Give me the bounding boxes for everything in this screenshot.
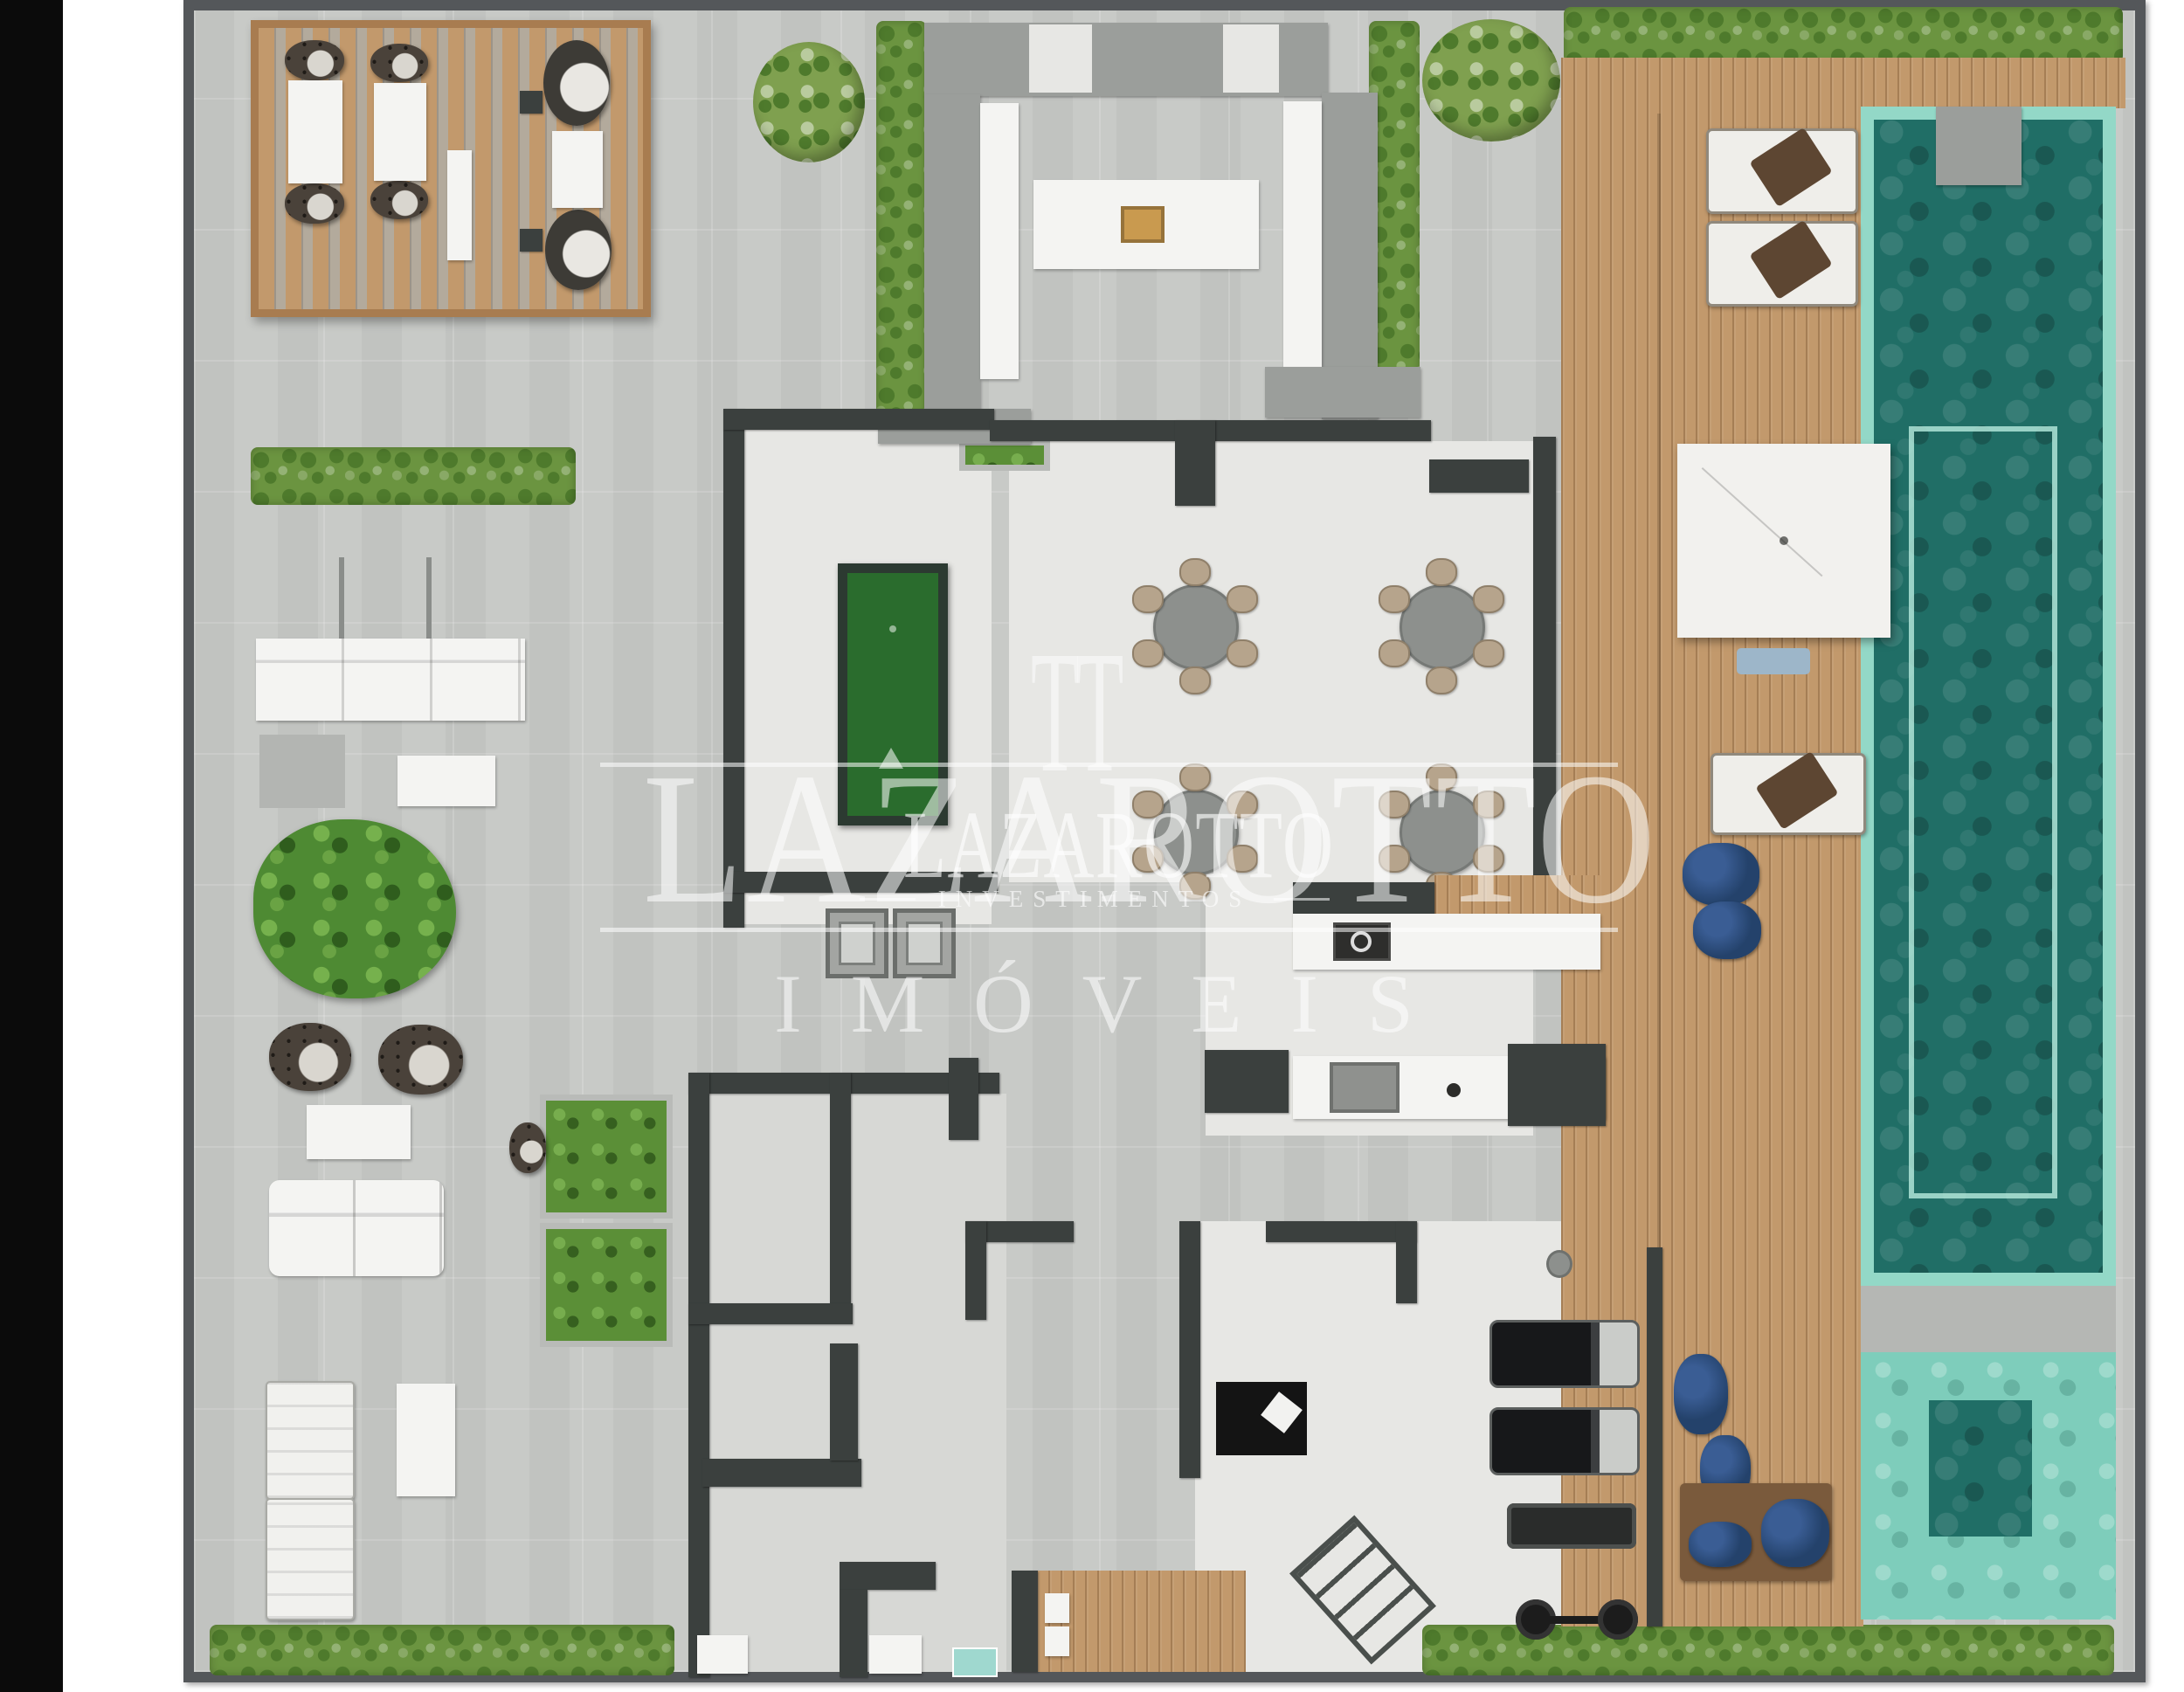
dining-chair — [1132, 845, 1164, 873]
planter-box-2 — [540, 1223, 673, 1347]
wall-core-v — [830, 1073, 851, 1321]
round-armchair — [269, 1023, 351, 1091]
entry-mat — [869, 1635, 922, 1674]
sink — [1447, 1083, 1461, 1097]
outdoor-sofa — [256, 639, 525, 721]
wall-left-long — [688, 1073, 709, 1677]
dining-chair — [1227, 585, 1258, 613]
pergola-table-2 — [374, 83, 426, 181]
deck-table-vertical — [397, 1384, 455, 1496]
bar-top-notch — [1029, 24, 1092, 93]
sauna-bench — [1045, 1593, 1069, 1623]
wall-dining-stub — [1175, 420, 1215, 506]
loveseat-pair — [269, 1180, 444, 1276]
wall-rooms-h — [702, 1459, 861, 1487]
left-black-strip — [0, 0, 63, 1692]
dining-chair — [1379, 639, 1410, 667]
pergola-side-table — [520, 91, 543, 114]
wall-gym-right — [1647, 1247, 1662, 1626]
blue-daybed-cushion — [1761, 1499, 1829, 1567]
garden-bush — [253, 819, 456, 998]
bar-left-counter — [980, 103, 1019, 379]
lap-pool-lane-marking — [1909, 426, 2057, 1198]
blue-lounge-chair — [1674, 1354, 1728, 1434]
dining-chair — [1473, 639, 1504, 667]
kitchen-wood-bar — [1434, 875, 1600, 914]
deck-umbrella — [1677, 444, 1890, 638]
pergola-side-table — [520, 229, 543, 252]
pergola-table-1 — [288, 80, 342, 183]
egg-chair — [545, 210, 612, 290]
bar-top-notch — [1223, 24, 1279, 93]
wall-rooms-v2 — [840, 1590, 867, 1677]
planter-box-1 — [540, 1095, 673, 1219]
planter-side-chair — [509, 1122, 546, 1173]
pool-deck-top-band — [1861, 58, 2125, 108]
wall-dining-right — [1533, 437, 1556, 884]
dining-chair — [1179, 763, 1211, 791]
elevator-1 — [826, 908, 888, 978]
wall-dining-right-seg — [1429, 459, 1529, 493]
tree-right-of-bar — [1422, 19, 1560, 142]
range — [1330, 1062, 1400, 1113]
pergola-chair — [285, 183, 344, 224]
pergola-coffee-table — [552, 131, 603, 208]
dining-chair — [1132, 791, 1164, 818]
dining-chair — [1227, 791, 1258, 818]
billiards-table — [838, 563, 948, 825]
round-armchair — [378, 1025, 463, 1095]
coffee-table — [397, 756, 495, 806]
dining-chair — [1379, 585, 1410, 613]
wall-gym-L-v — [965, 1221, 986, 1320]
billiards-spot — [889, 625, 896, 632]
pool-bridge-walkway — [1861, 1286, 2116, 1352]
treadmill — [1489, 1407, 1640, 1475]
bar-right-counter — [1283, 101, 1322, 377]
wall-gym-tr-v — [1396, 1221, 1417, 1303]
hedge-top-right — [1564, 7, 2123, 63]
dining-chair — [1379, 845, 1410, 873]
wall-core-top — [723, 872, 998, 893]
dining-chair — [1227, 845, 1258, 873]
blue-daybed-cushion — [1689, 1522, 1752, 1567]
kitchen-cabinet-left — [1205, 1050, 1289, 1113]
mat-figure — [1261, 1392, 1303, 1433]
pergola-chair — [370, 44, 428, 82]
dining-chair — [1132, 639, 1164, 667]
sun-lounger — [1706, 128, 1858, 214]
tree-left-of-bar — [753, 42, 865, 162]
wall-core-h2 — [688, 1303, 853, 1324]
dining-chair — [1179, 872, 1211, 900]
kitchen-backsplash — [1293, 882, 1434, 915]
kids-pool-inner — [1929, 1400, 2032, 1537]
treadmill — [1489, 1320, 1640, 1388]
wall-games-top — [723, 409, 994, 430]
teal-mat — [952, 1647, 998, 1677]
towel — [1750, 128, 1833, 207]
sauna-wall — [1012, 1571, 1038, 1672]
wall-gym-tr-h — [1266, 1221, 1416, 1242]
dining-chair — [1473, 791, 1504, 818]
hedge-bottom-left — [210, 1625, 674, 1675]
wall-rooms-h2 — [840, 1562, 936, 1590]
trellis-post — [426, 557, 432, 640]
weight-bench — [1507, 1503, 1636, 1549]
elevator-2 — [893, 908, 956, 978]
pergola-bench — [447, 150, 472, 260]
dumbbell — [1516, 1599, 1638, 1641]
egg-chair — [543, 40, 610, 126]
sun-lounger-vertical — [266, 1498, 355, 1620]
dining-chair — [1426, 666, 1457, 694]
pool-towel — [1737, 648, 1810, 674]
bar-right-end-wall — [1265, 367, 1420, 418]
wall-core-L — [949, 1058, 978, 1140]
sauna-bench — [1045, 1626, 1069, 1656]
kitchen-cabinet-right — [1508, 1044, 1606, 1126]
dining-chair — [1426, 763, 1457, 791]
sun-lounger-vertical — [266, 1381, 355, 1500]
blue-potted-plant — [1693, 901, 1761, 959]
planter-dining-corner — [959, 439, 1050, 471]
pergola-chair — [285, 40, 344, 80]
bar-left-wall — [924, 94, 980, 428]
pool-entry-platform — [1936, 107, 2022, 185]
bar-grill — [1121, 206, 1165, 243]
floorplan-image: LAZAROTTO TT LAZAROTTO INVESTIMENTOS IMÓ… — [0, 0, 2184, 1692]
dumbbell-plate — [1598, 1599, 1638, 1640]
dining-chair — [1379, 791, 1410, 818]
sun-lounger — [1706, 221, 1858, 307]
dining-chair — [1179, 666, 1211, 694]
cooktop-burner — [1351, 931, 1372, 952]
dining-chair — [1179, 558, 1211, 586]
towel — [1750, 220, 1833, 300]
pergola-chair — [370, 181, 428, 219]
dining-chair — [1473, 845, 1504, 873]
dining-chair — [1473, 585, 1504, 613]
side-table — [307, 1105, 411, 1159]
wall-gym-v — [1179, 1221, 1200, 1478]
gym-stool — [1546, 1250, 1572, 1278]
dining-chair — [1132, 585, 1164, 613]
hedge-left-strip — [251, 447, 576, 505]
dining-chair — [1426, 558, 1457, 586]
towel — [1756, 751, 1839, 830]
wall-games-left — [723, 409, 744, 928]
hedge-bar-left — [876, 21, 927, 425]
sun-lounger — [1711, 753, 1866, 835]
exercise-mat — [1216, 1382, 1307, 1455]
trellis-post — [339, 557, 344, 640]
dining-chair — [1227, 639, 1258, 667]
billiards-rack-mark — [879, 748, 903, 769]
wall-rooms-v — [830, 1343, 858, 1461]
blue-potted-plant — [1683, 843, 1759, 906]
entry-mat — [697, 1635, 748, 1674]
outdoor-rug — [259, 735, 345, 808]
